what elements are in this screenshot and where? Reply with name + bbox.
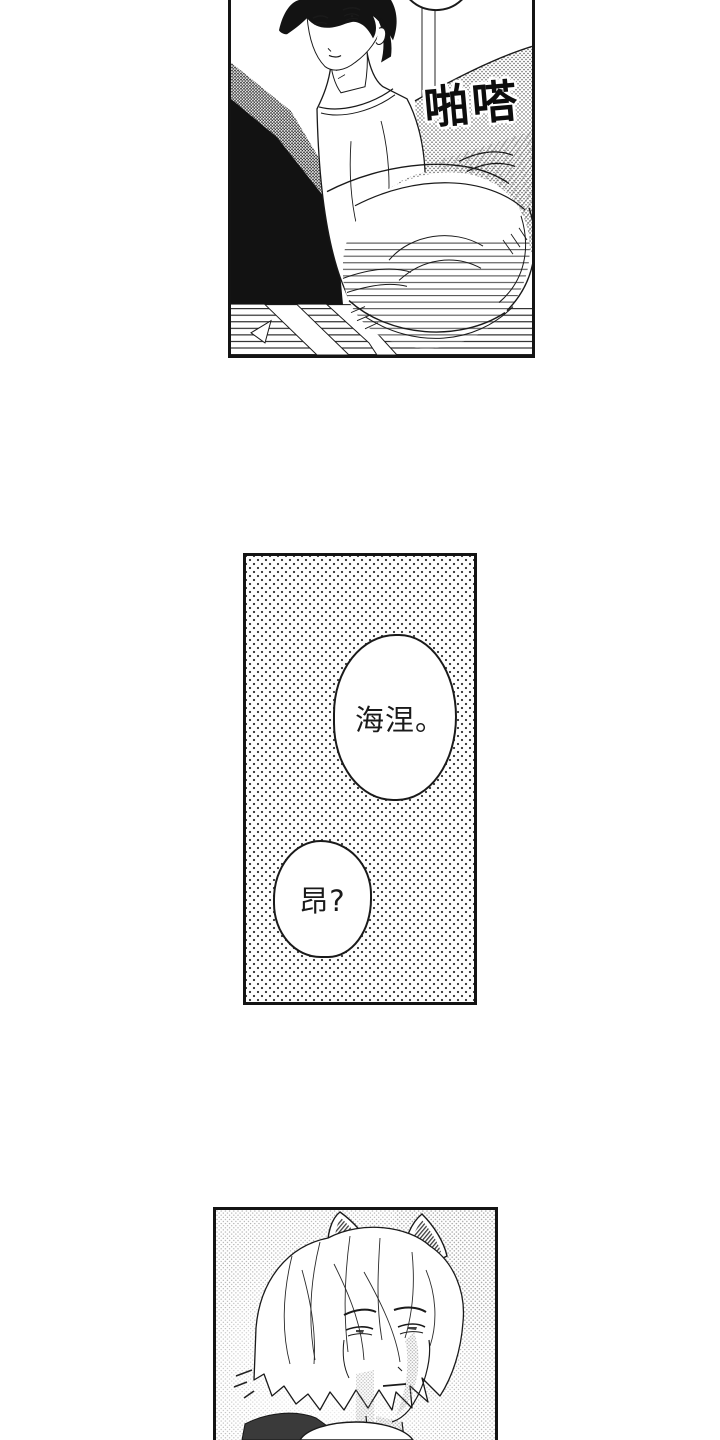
manga-panel-middle: 海涅。 昂? [243,553,477,1005]
top-panel-illustration [231,0,532,355]
speech-bubble-1-text: 海涅。 [355,697,445,739]
sfx-text: 啪嗒 [422,78,522,131]
speech-bubble-2-text: 昂? [299,878,345,920]
manga-panel-top: 啪嗒 [228,0,535,358]
speech-bubble-1: 海涅。 [333,634,457,801]
manga-page: 啪嗒 海涅。 昂? [0,0,720,1440]
speech-bubble-2: 昂? [273,840,372,958]
bottom-panel-illustration [216,1210,495,1440]
manga-panel-bottom [213,1207,498,1440]
